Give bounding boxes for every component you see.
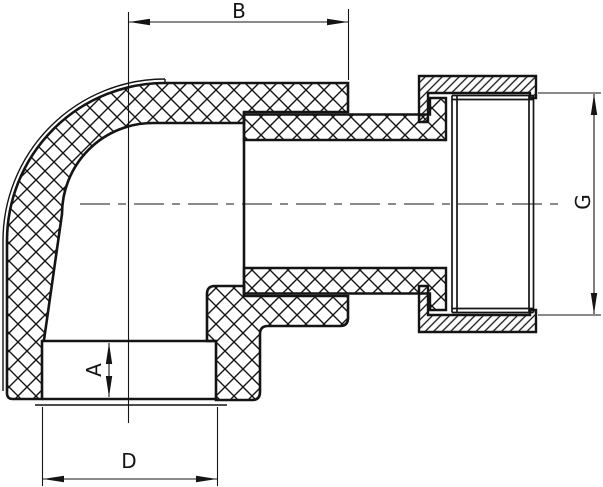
dimension-a: A	[82, 343, 112, 397]
dimension-label-d: D	[121, 449, 136, 473]
dimension-label-a: A	[82, 363, 106, 377]
dimension-label-g: G	[571, 194, 595, 210]
dim-d-arrow-left	[43, 476, 64, 482]
dim-a-arrow-top	[106, 343, 112, 364]
dimension-label-b: B	[232, 0, 246, 23]
dim-b-arrow-right	[327, 19, 348, 25]
dim-g-arrow-bottom	[591, 293, 597, 314]
dimension-b: B	[129, 0, 349, 80]
dim-g-arrow-top	[591, 94, 597, 115]
dimension-g: G	[538, 93, 601, 315]
dim-d-arrow-right	[196, 476, 217, 482]
dim-a-arrow-bottom	[106, 376, 112, 397]
dimension-d: D	[43, 407, 218, 486]
centerlines	[80, 12, 560, 423]
dim-b-arrow-left	[129, 19, 150, 25]
elbow-body-lower	[207, 286, 348, 400]
technical-drawing-canvas: B G A D	[0, 0, 603, 487]
